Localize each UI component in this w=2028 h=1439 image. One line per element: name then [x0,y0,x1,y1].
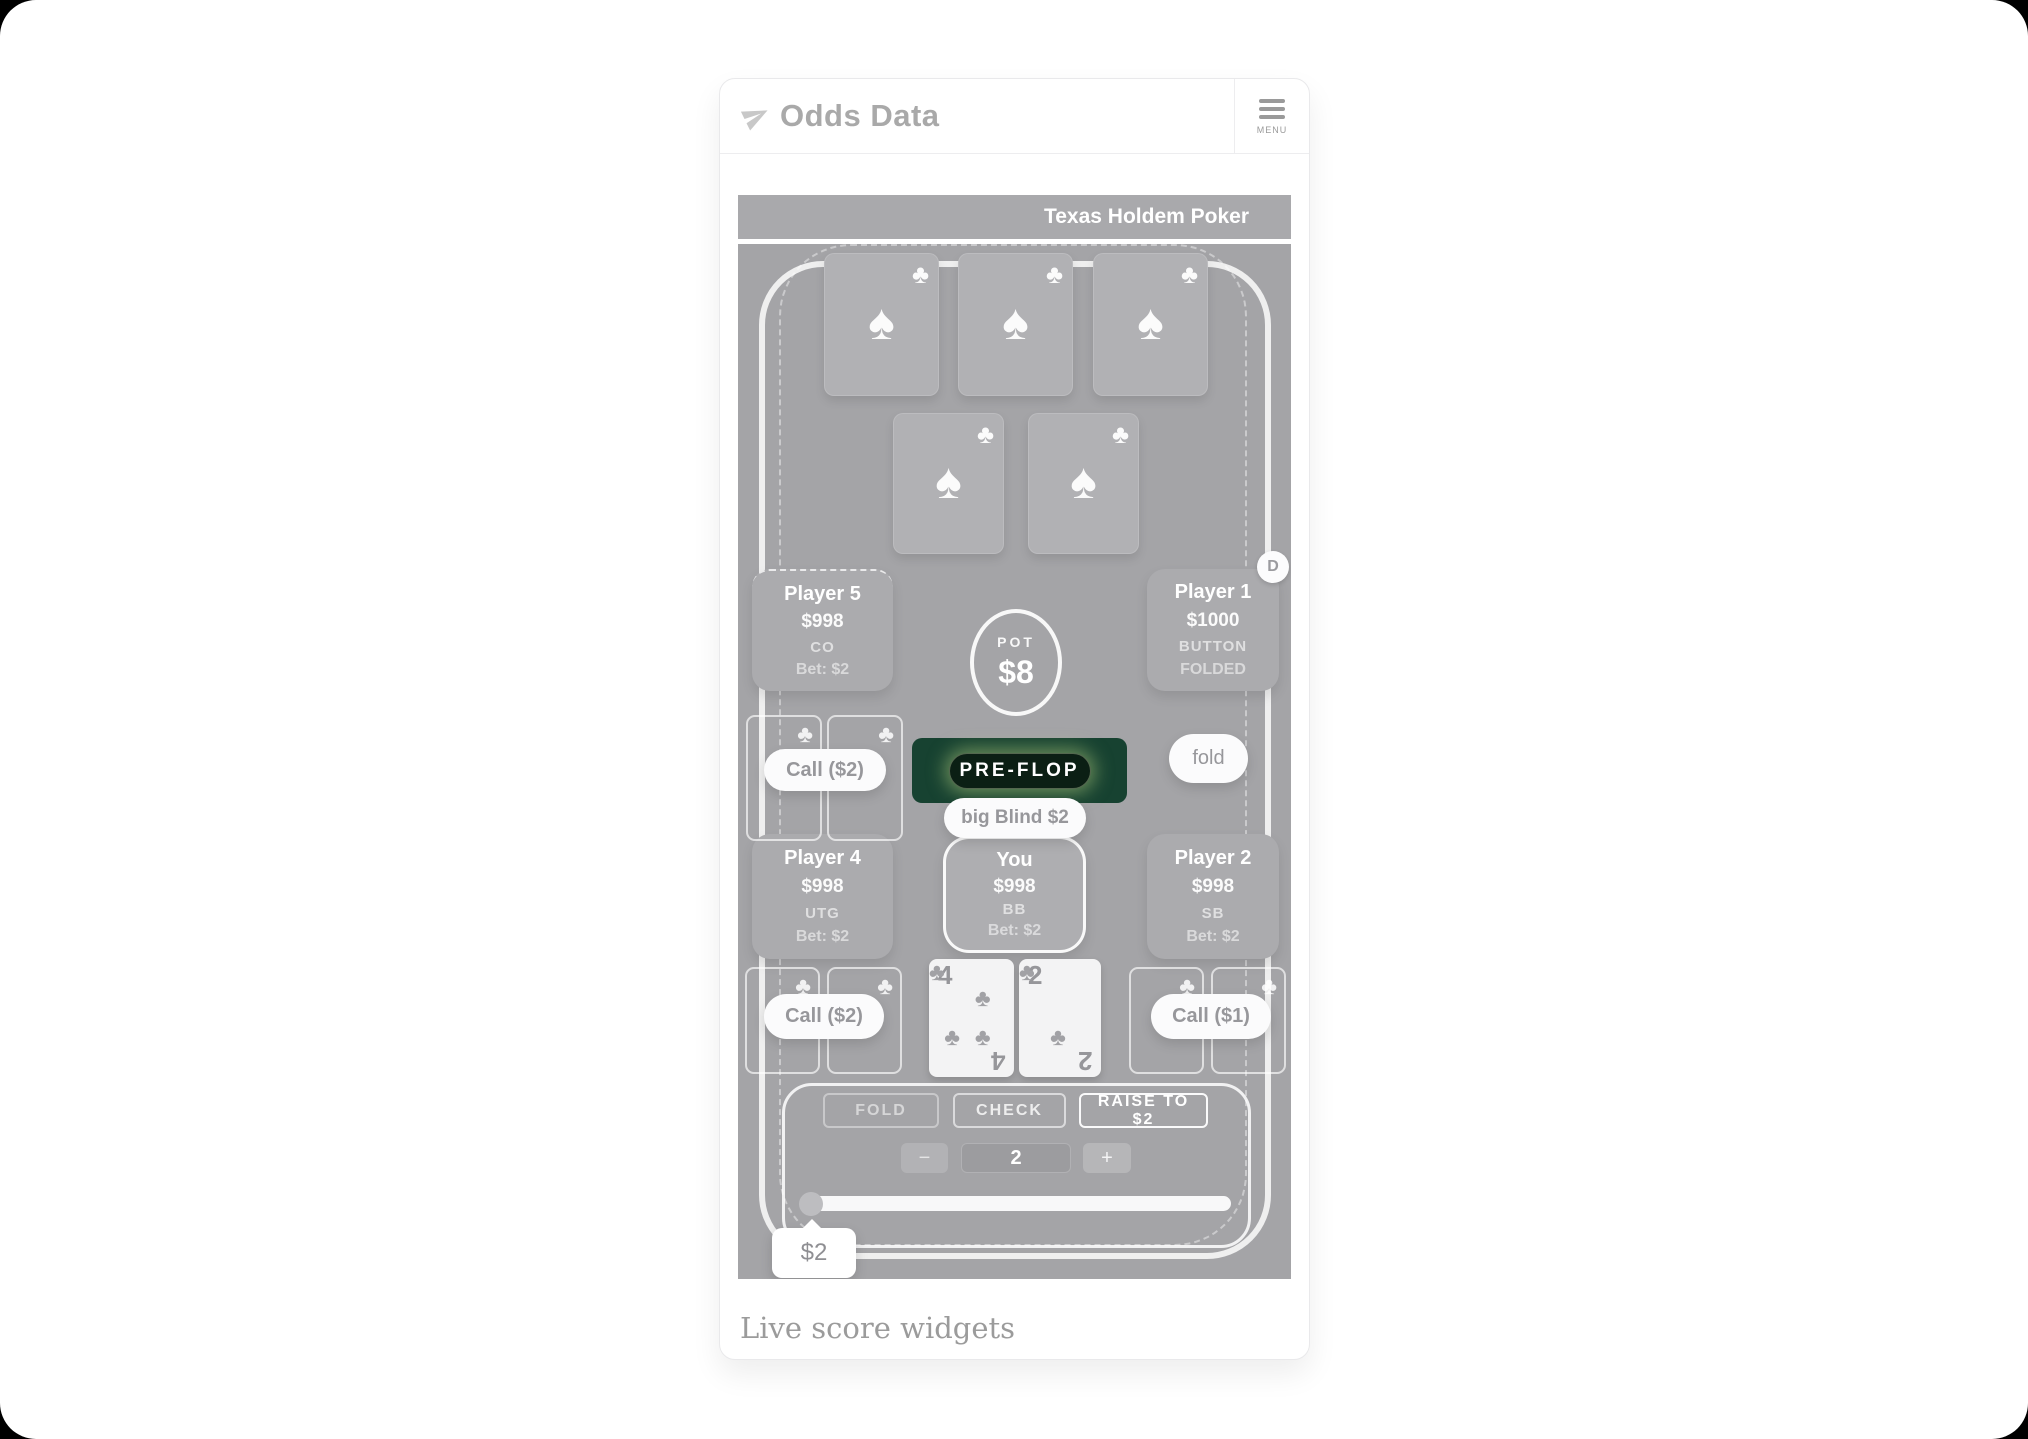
player-name: Player 5 [784,583,861,606]
raise-button[interactable]: RAISE TO $2 [1079,1093,1208,1128]
player-stack: $998 [993,876,1035,898]
club-pip: ♣ [929,959,945,987]
player-position: UTG [805,905,840,922]
action-panel: FOLD CHECK RAISE TO $2 − 2 + [782,1083,1251,1248]
player-box-you: You $998 BB Bet: $2 [943,836,1086,953]
game-title: Texas Holdem Poker [1044,205,1249,229]
club-icon: ♣ [912,259,929,290]
dealer-button: D [1257,551,1289,583]
menu-label: MENU [1257,125,1288,135]
club-icon: ♣ [1181,259,1198,290]
player-box-player5: Player 5 $998 CO Bet: $2 [752,569,893,691]
club-icon: ♣ [1112,419,1129,450]
check-button[interactable]: CHECK [953,1093,1066,1128]
player-stack: $1000 [1187,610,1240,632]
club-icon: ♣ [797,721,813,749]
club-icon: ♣ [878,721,894,749]
player-box-player1: Player 1 $1000 BUTTON FOLDED [1147,569,1279,691]
community-card-back: ♣ ♠ [1028,413,1139,554]
player-bet: Bet: $2 [988,922,1041,940]
community-card-back: ♣ ♠ [824,253,939,396]
player-position: SB [1202,905,1225,922]
spade-icon: ♠ [935,452,962,510]
action-pill-call: Call ($1) [1151,994,1271,1039]
player-stack: $998 [801,611,843,633]
fold-button[interactable]: FOLD [823,1093,939,1128]
brand-title: Odds Data [780,98,940,134]
paper-plane-icon [737,97,774,134]
app-header: Odds Data MENU [720,79,1309,154]
club-pip: ♣ [944,1024,960,1052]
club-icon: ♣ [877,973,893,1001]
bet-slider-track[interactable] [801,1196,1231,1211]
player-bet: Bet: $2 [1186,928,1239,946]
stage-badge-label: PRE-FLOP [949,753,1091,789]
game-titlebar: Texas Holdem Poker [738,195,1291,239]
community-card-back: ♣ ♠ [1093,253,1208,396]
spade-icon: ♠ [1137,293,1164,351]
pot-label: POT [997,634,1035,650]
bet-decrease-button[interactable]: − [901,1143,948,1173]
pot-amount: $8 [998,654,1034,691]
action-pill-call: Call ($2) [764,994,884,1039]
player-status: FOLDED [1180,661,1246,679]
player-position: CO [810,639,835,656]
player-stack: $998 [1192,876,1234,898]
bet-slider-handle[interactable] [799,1192,823,1216]
hole-card-4-clubs: 4 ♣ ♣ ♣ ♣ 4 [929,959,1014,1077]
spade-icon: ♠ [1002,293,1029,351]
spade-icon: ♠ [868,293,895,351]
club-icon: ♣ [977,419,994,450]
player-box-player2: Player 2 $998 SB Bet: $2 [1147,834,1279,959]
bet-increase-button[interactable]: + [1083,1143,1131,1173]
club-icon: ♣ [1261,973,1277,1001]
community-card-back: ♣ ♠ [893,413,1004,554]
club-pip: ♣ [1050,1024,1066,1052]
page: Odds Data MENU Texas Holdem Poker ♣ ♠ ♣ … [0,0,2028,1439]
hamburger-icon [1259,99,1285,103]
footer-caption: Live score widgets [740,1311,1015,1345]
card-rank-rotated: 2 [1078,1045,1092,1076]
club-pip: ♣ [975,985,991,1013]
player-stack: $998 [801,876,843,898]
pot-circle: POT $8 [970,609,1062,716]
player-position: BB [1003,901,1027,918]
app-card: Odds Data MENU Texas Holdem Poker ♣ ♠ ♣ … [719,78,1310,1360]
player-bet: Bet: $2 [796,661,849,679]
slider-value-tooltip: $2 [772,1228,856,1278]
community-card-back: ♣ ♠ [958,253,1073,396]
menu-button[interactable]: MENU [1234,79,1309,153]
player-box-player4: Player 4 $998 UTG Bet: $2 [752,834,893,959]
club-pip: ♣ [1019,959,1035,987]
card-rank-rotated: 4 [991,1045,1005,1076]
player-name: Player 2 [1175,847,1252,870]
action-pill-big-blind: big Blind $2 [944,798,1086,838]
poker-table: ♣ ♠ ♣ ♠ ♣ ♠ ♣ ♠ ♣ ♠ Player 5 [738,244,1291,1279]
club-pip: ♣ [975,1024,991,1052]
player-position: BUTTON [1179,638,1247,655]
player-bet: Bet: $2 [796,928,849,946]
player-name: You [996,849,1032,872]
player-name: Player 4 [784,847,861,870]
action-pill-call: Call ($2) [764,749,886,791]
club-icon: ♣ [1046,259,1063,290]
spade-icon: ♠ [1070,452,1097,510]
brand: Odds Data [720,79,940,153]
hole-card-2-clubs: 2 ♣ ♣ 2 [1019,959,1101,1077]
action-pill-fold: fold [1169,734,1248,783]
player-name: Player 1 [1175,581,1252,604]
stage-badge: PRE-FLOP [912,738,1127,803]
bet-amount-value: 2 [961,1143,1071,1173]
